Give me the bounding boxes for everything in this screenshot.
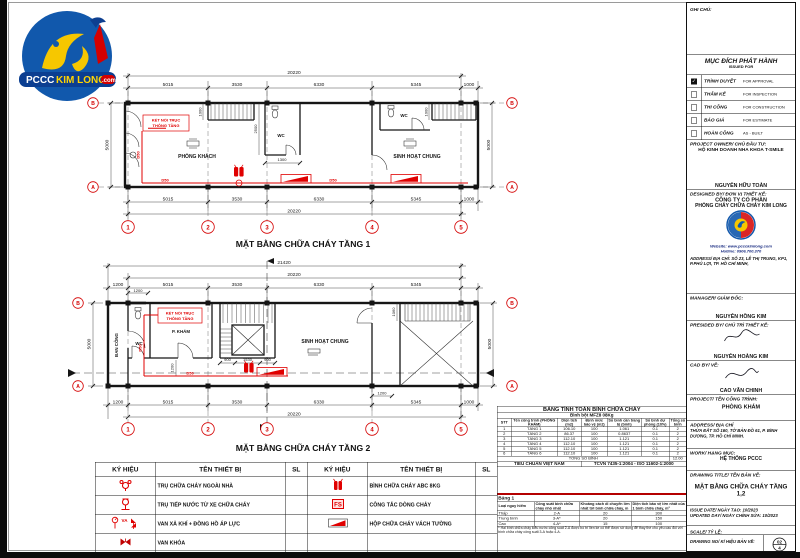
wc-door — [286, 145, 296, 155]
extinguisher-icon — [244, 361, 254, 373]
pipe-label: D50 — [161, 177, 169, 182]
standard-label: TIÊU CHUẨN VIỆT NAM — [497, 461, 581, 466]
columns — [106, 301, 479, 389]
dim-label: 5345 — [411, 197, 422, 203]
section-flag — [68, 369, 76, 377]
extinguisher-icon — [234, 165, 244, 177]
company-hotline: Hotline: 0906.700.370 — [690, 249, 792, 254]
svg-text:B: B — [510, 301, 514, 307]
dim-label: 6330 — [314, 197, 325, 203]
dim-label: 5000 — [486, 139, 492, 150]
site-address-text: THỬA ĐẤT SỐ 160, TỜ BẢN ĐỒ 61, P. BÌNH D… — [690, 428, 792, 439]
legend-header: SL — [475, 462, 497, 476]
project-name: PHÒNG KHÁM — [690, 404, 792, 410]
legend-header: TÊN THIẾT BỊ — [155, 462, 285, 476]
legend-label: TRỤ TIẾP NƯỚC TỪ XE CHỮA CHÁY — [155, 495, 285, 514]
checkbox: ✓ — [691, 78, 697, 84]
fire-annotations: KẾT NỐI TRỤC THÔNG TẦNG D50 D50 D50 — [136, 115, 469, 186]
col-header: Số bình dự phòng (10%) — [641, 418, 669, 427]
manager-label: MANAGER/ GIÁM ĐỐC: — [690, 296, 792, 302]
legend-row: TRỤ TIẾP NƯỚC TỪ XE CHỮA CHÁY FS CÔNG TẮ… — [95, 495, 497, 514]
pipe-d50 — [144, 315, 288, 376]
updated-date-label: UPDATED DAY/ NGÀY CHỈNH SỬA: — [690, 513, 761, 518]
exterior-wall — [108, 303, 478, 386]
svg-text:A: A — [510, 185, 514, 191]
floor-plan-1: 20220 5015 3530 6330 5345 1000 1000 WC 1… — [60, 55, 530, 255]
dim-label: 5015 — [163, 197, 174, 203]
dim-label: 6330 — [314, 82, 325, 88]
updated-date-value: 10/2023 — [762, 513, 777, 518]
drawing-no-label: DRAWING NO/ KÍ HIỆU BẢN VẼ: — [690, 539, 755, 544]
dim-label: 1000 — [464, 197, 475, 203]
issue-option: THẨM KẾ FOR INSPECTION — [687, 88, 795, 101]
dim-label: 1200 — [378, 391, 388, 396]
dim-label: 1200 — [113, 400, 124, 406]
room-label-balcony: BAN CÔNG — [114, 332, 119, 356]
owner-name: HỘ KINH DOANH NHA KHOA T-SMILE — [690, 147, 792, 153]
col-header: Công suất bình chữa cháy nhỏ nhất — [534, 502, 579, 511]
col-header: Định mức bảo vệ (m2) — [581, 418, 607, 427]
pipe-label: D50 — [186, 370, 194, 375]
dim-label: 1200 — [170, 363, 175, 373]
legend-label: CÔNG TẮC DÒNG CHẢY — [367, 495, 475, 514]
dim-label: 1000 — [424, 107, 429, 117]
toilet-icon — [135, 311, 141, 319]
furniture-icon — [308, 349, 320, 355]
company-seal — [726, 210, 757, 241]
col-header: Tên công trình (PHÒNG KHÁM) — [511, 418, 557, 427]
issued-for-header: MỤC ĐÍCH PHÁT HÀNH ISSUED FOR — [687, 55, 795, 75]
checkbox — [691, 91, 697, 97]
dates-block: ISSUE DATE/ NGÀY TẠO: 10/2023 UPDATED DA… — [687, 506, 795, 526]
toilet-icon — [272, 110, 278, 118]
plan1-title: MẶT BẰNG CHỮA CHÁY TẦNG 1 — [236, 239, 371, 249]
drawing-no-top: 02 — [777, 539, 783, 544]
checkbox — [691, 117, 697, 123]
dim-label: 5000 — [105, 139, 111, 150]
door-arc — [372, 155, 387, 170]
work-block: WORK/ HẠNG MỤC: HỆ THỐNG PCCC — [687, 449, 795, 471]
svg-text:A: A — [510, 384, 514, 390]
wc2-door — [412, 118, 424, 130]
svg-text:B: B — [510, 101, 514, 107]
fire-annotations: KẾT NỐI TRỤC THÔNG TẦNG D50 D50 — [138, 308, 289, 376]
void-cross — [400, 321, 473, 386]
room-label-common: SINH HOẠT CHUNG — [301, 339, 348, 345]
title-block: GHI CHÚ: MỤC ĐÍCH PHÁT HÀNH ISSUED FOR ✓… — [686, 2, 796, 552]
hose-box-icon — [391, 175, 421, 184]
issue-option: BÁO GIÁ FOR ESTIMATE — [687, 114, 795, 127]
manager-name: NGUYỄN HỒNG KIM — [687, 314, 795, 320]
extinguisher-calc-table: BẢNG TÍNH TOÁN BÌNH CHỮA CHÁY Bình bột M… — [497, 406, 686, 467]
drawing-no-bottom: 4 — [778, 545, 781, 550]
logo-text-pccc: PCCC — [26, 75, 54, 86]
dim-label: 1060 — [391, 307, 396, 317]
room-label: SINH HOẠT CHUNG — [393, 154, 440, 160]
legend-label: TRỤ CHỮA CHÁY NGOÀI NHÀ — [155, 476, 285, 495]
room-label-wc: WC — [277, 133, 285, 138]
legend-row: TRỤ CHỮA CHÁY NGOÀI NHÀ BÌNH CHỮA CHÁY A… — [95, 476, 497, 495]
dim-label: 20220 — [287, 209, 301, 215]
standard-row: TIÊU CHUẨN VIỆT NAMTCVN 7435-1:2004 - IS… — [497, 461, 686, 466]
shutoff-valve-icon — [110, 535, 140, 550]
col-header: Diện tích bảo vệ lớn nhất của 1 bình chữ… — [631, 502, 686, 511]
dim-label: 900 — [224, 357, 231, 362]
hose-box-icon — [281, 175, 311, 184]
issue-option: ✓ TRÌNH DUYỆT FOR APPROVAL — [687, 75, 795, 88]
project-block: PROJECT/ TÊN CÔNG TRÌNH: PHÒNG KHÁM — [687, 395, 795, 421]
legend-header: KÝ HIỆU — [95, 462, 155, 476]
dim-label: 5345 — [411, 400, 422, 406]
legend-table: KÝ HIỆU TÊN THIẾT BỊ SL KÝ HIỆU TÊN THIẾ… — [95, 462, 497, 553]
dim-label: 6330 — [314, 400, 325, 406]
dim-label: 21420 — [277, 260, 291, 266]
issue-option: THI CÔNG FOR CONSTRUCTION — [687, 101, 795, 114]
issue-option-en: FOR APPROVAL — [743, 79, 774, 84]
dim-label: 5015 — [163, 82, 174, 88]
dim-label: 5015 — [163, 282, 174, 288]
row-bubble-label: A — [91, 185, 95, 191]
dim-label: 5015 — [163, 400, 174, 406]
work-value: HỆ THỐNG PCCC — [690, 456, 792, 462]
owner-signatory: NGUYỄN HỮU TOÀN — [687, 183, 795, 189]
issue-date-value: 10/2023 — [743, 508, 758, 513]
checkbox — [691, 130, 697, 136]
dim-label: 20220 — [287, 272, 301, 278]
dim-label: 5345 — [411, 82, 422, 88]
dim-label: 1200 — [134, 288, 144, 293]
company-address-2: P.PHÚ LỢI, TP. HỒ CHÍ MINH, — [690, 261, 792, 266]
cad-name: CAO VĂN CHINH — [687, 388, 795, 394]
door-arc — [357, 308, 372, 323]
legend-label: BÌNH CHỮA CHÁY ABC 8KG — [367, 476, 475, 495]
issue-option-vn: TRÌNH DUYỆT — [702, 79, 744, 85]
notes-box: GHI CHÚ: — [687, 3, 795, 55]
hose-box-icon — [257, 368, 287, 377]
col-header: Loại nguy hiểm — [497, 502, 534, 511]
dim-label: 6330 — [314, 282, 325, 288]
extinguisher-icon — [322, 478, 352, 493]
pipe-label: D50 — [329, 177, 337, 182]
dim-label: 900 — [264, 357, 271, 362]
drawing-title-label: DRAWING TITLE/ TÊN BẢN VẼ: — [690, 473, 792, 479]
legend-header: TÊN THIẾT BỊ — [367, 462, 475, 476]
legend-header: SL — [285, 462, 307, 476]
notes-label: GHI CHÚ: — [690, 7, 712, 13]
dim-label: 1000 — [464, 82, 475, 88]
page-edge-left — [0, 0, 7, 558]
legend-label — [367, 533, 475, 552]
dim-label: 1300 — [278, 157, 288, 162]
plan2-title: MẶT BẰNG CHỮA CHÁY TẦNG 2 — [236, 443, 371, 453]
air-valve-gauge-icon: VA — [108, 516, 143, 531]
col-header: Khoảng cách di chuyển lớn nhất tới bình … — [579, 502, 631, 511]
fs-label: FS — [334, 503, 342, 509]
wc-walls — [265, 103, 300, 155]
separator-line — [497, 493, 686, 495]
drawing-no-bubble: 02 4 — [772, 537, 787, 552]
manager-block: MANAGER/ GIÁM ĐỐC: NGUYỄN HỒNG KIM — [687, 294, 795, 321]
dim-label: 20220 — [287, 412, 301, 418]
section-flag — [267, 258, 274, 264]
dim-label: 2500 — [253, 124, 258, 134]
room-label-exam: P. KHÁM — [172, 329, 190, 334]
floor-plan-2: 21420 20220 1200 5015 3530 6330 5345 120… — [60, 253, 530, 460]
presided-label: PRESIDED BY/ CHỦ TRÌ THIẾT KẾ: — [690, 323, 792, 329]
standard-code: TCVN 7435-1:2004 - ISO 11602-1:2000 — [581, 461, 686, 466]
pipe-label: D50 — [136, 151, 141, 159]
riser-note-line1: KẾT NỐI TRỤC — [152, 118, 181, 123]
truck-hydrant-icon — [110, 497, 140, 512]
scale-label: SCALE/ TỶ LỆ: — [690, 530, 722, 535]
dim-label: 1000 — [198, 107, 203, 117]
riser-note-line2: THÔNG TẦNG — [167, 316, 194, 321]
room-label-wc2: WC — [400, 113, 408, 118]
owner-block: PROJECT OWNER/ CHỦ ĐẦU TƯ: HỘ KINH DOANH… — [687, 140, 795, 190]
dim-label: 5345 — [411, 282, 422, 288]
legend-header: KÝ HIỆU — [307, 462, 367, 476]
dim-label: 3530 — [232, 197, 243, 203]
dim-label: 20220 — [287, 70, 301, 76]
issue-date-label: ISSUE DATE/ NGÀY TẠO: — [690, 508, 741, 513]
scale-row: SCALE/ TỶ LỆ: — [687, 526, 795, 535]
stair-treads — [223, 303, 272, 323]
flow-switch-icon: FS — [322, 497, 352, 512]
dim-lines — [123, 73, 483, 101]
dim-label: 3530 — [232, 82, 243, 88]
pipe-label: D50 — [138, 344, 143, 352]
project-label: PROJECT/ TÊN CÔNG TRÌNH: — [690, 397, 792, 403]
stair2-treads — [408, 303, 468, 321]
room-label: PHÒNG KHÁCH — [178, 152, 216, 160]
checkbox — [691, 104, 697, 110]
grid-bubbles: 1 2 3 4 5 — [122, 221, 468, 234]
va-label: VA — [121, 518, 128, 523]
row-bubble-label: B — [76, 301, 80, 307]
legend-label: VAN KHÓA — [155, 533, 285, 552]
riser-note-line1: KẾT NỐI TRỤC — [166, 311, 195, 316]
exam-room-door — [178, 343, 193, 358]
stair2-walls — [432, 103, 476, 120]
legend-row: VAN KHÓA — [95, 533, 497, 552]
company-line2: PHÒNG CHÁY CHỮA CHÁY KIM LONG — [690, 203, 792, 209]
row-bubble-label: B — [91, 101, 95, 107]
issued-title: MỤC ĐÍCH PHÁT HÀNH — [690, 57, 792, 65]
cad-block: CAD BY/ VẼ: CAO VĂN CHINH — [687, 361, 795, 395]
dim-label: 5000 — [87, 338, 93, 349]
presided-name: NGUYỄN HOÀNG KIM — [687, 354, 795, 360]
grid-bubbles: 1 2 3 4 5 — [122, 423, 468, 436]
dim-label: 1200 — [113, 282, 124, 288]
stair2-treads — [435, 103, 471, 120]
drawing-title-block: DRAWING TITLE/ TÊN BẢN VẼ: MẶT BẰNG CHỮA… — [687, 471, 795, 506]
stair-treads — [211, 103, 251, 120]
row-bubble-label: A — [76, 384, 80, 390]
riser-note-line2: THÔNG TẦNG — [153, 123, 180, 128]
issue-option: HOÀN CÔNG AS - BUILT — [687, 127, 795, 140]
col-header: Diện tích (m2) — [557, 418, 581, 427]
presided-block: PRESIDED BY/ CHỦ TRÌ THIẾT KẾ: NGUYỄN HO… — [687, 321, 795, 361]
window — [130, 302, 146, 305]
col-header: STT — [497, 418, 511, 427]
dim-label: 3530 — [232, 400, 243, 406]
furniture-icon — [187, 139, 416, 148]
designer-block: DESIGNED BY/ ĐƠN VỊ THIẾT KẾ: CÔNG TY CỔ… — [687, 190, 795, 294]
legend-row: VA VAN XẢ KHÍ + ĐỒNG HỒ ÁP LỰC HỘP CHỮA … — [95, 514, 497, 533]
dim-label: 3530 — [232, 282, 243, 288]
issued-subtitle: ISSUED FOR — [690, 65, 792, 70]
dim-label: 1000 — [464, 400, 475, 406]
footnote: * Hai bình chữa cháy kiểu nước công suất… — [497, 526, 686, 534]
wall-hose-box-icon — [322, 516, 352, 531]
signature — [719, 368, 764, 381]
col-header: Tổng số bình — [669, 418, 686, 427]
outdoor-hydrant-icon — [110, 478, 140, 493]
page-edge-bottom — [0, 552, 800, 558]
drawing-sheet: PCCC KIM LONG .com 20220 5015 3530 6330 … — [0, 0, 800, 558]
legend-label: VAN XẢ KHÍ + ĐỒNG HỒ ÁP LỰC — [155, 514, 285, 533]
col-header: Số bình cần trang bị (bình) — [607, 418, 641, 427]
drawing-title-value: MẶT BẰNG CHỮA CHÁY TẦNG 1,2 — [690, 483, 792, 497]
legend-label: HỘP CHỮA CHÁY VÁCH TƯỜNG — [367, 514, 475, 533]
hazard-class-table: Bảng 1 Loại nguy hiểm Công suất bình chữ… — [497, 496, 686, 534]
toilet-icon — [388, 109, 394, 117]
shaft-cross — [232, 325, 264, 355]
site-address-block: ADDRESS/ ĐỊA CHỈ THỬA ĐẤT SỐ 160, TỜ BẢN… — [687, 421, 795, 449]
signature — [719, 328, 764, 345]
dim-label: 5000 — [487, 338, 493, 349]
